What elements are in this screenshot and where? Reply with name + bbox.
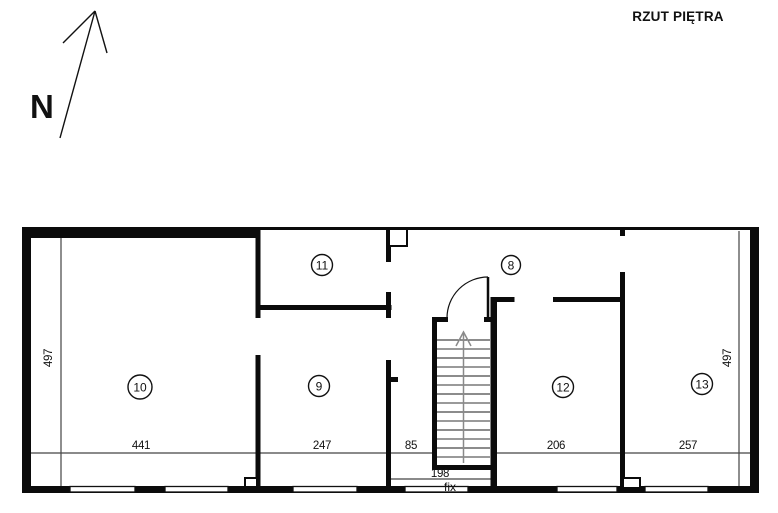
window-room10-left (70, 487, 135, 493)
floor-plan-drawing: RZUT PIĘTRA N (0, 0, 778, 513)
wall-room11-bottom (256, 305, 392, 310)
dim-corridor-width: 85 (405, 440, 417, 452)
wall-exterior-top-thick (22, 227, 258, 238)
north-label: N (30, 88, 54, 125)
wall-exterior-top-thin (258, 227, 759, 230)
chimney-bottom-left (245, 478, 257, 487)
window-room13 (645, 487, 708, 493)
north-arrow-barb-right (95, 11, 107, 53)
wall-room12-top-right (553, 297, 625, 302)
staircase (434, 300, 496, 468)
chimney-top (389, 229, 407, 246)
wall-room9-right (386, 360, 391, 493)
window-room12 (557, 487, 617, 493)
room-number-11: 11 (316, 259, 329, 273)
dim-room10-width: 441 (132, 440, 150, 452)
wall-room13-left (620, 272, 625, 493)
wall-room12-top-left (491, 297, 515, 302)
window-fix-label: fix (444, 480, 456, 494)
room-number-8: 8 (508, 259, 515, 273)
wall-exterior-right (750, 227, 759, 493)
wall-exterior-left (22, 227, 31, 493)
room-number-9: 9 (316, 380, 323, 394)
drawing-title: RZUT PIĘTRA (632, 9, 723, 24)
floor-plan-page: RZUT PIĘTRA N (0, 0, 778, 513)
dim-room12-width: 206 (547, 440, 565, 452)
room-number-10: 10 (133, 381, 147, 395)
dim-room13-width: 257 (679, 440, 697, 452)
room-number-12: 12 (556, 381, 570, 395)
chimney-bottom-right (623, 478, 640, 488)
room-number-13: 13 (695, 378, 709, 392)
window-fix (405, 487, 468, 493)
dim-height-right: 497 (722, 349, 734, 367)
window-room10-right (165, 487, 228, 493)
wall-room10-upper (256, 227, 261, 318)
north-arrow-shaft (60, 11, 95, 138)
wall-stair-right (491, 297, 498, 493)
dim-height-left: 497 (43, 349, 55, 367)
wall-door-stub (391, 377, 398, 382)
window-room9 (293, 487, 357, 493)
wall-room11-right-lower (386, 292, 391, 318)
wall-room10-lower (256, 355, 261, 493)
north-arrow (60, 11, 107, 138)
wall-stair-left (432, 317, 437, 470)
wall-room13-left-stub (620, 227, 625, 236)
dim-stair-bay-width: 198 (431, 468, 449, 480)
dim-room9-width: 247 (313, 440, 331, 452)
